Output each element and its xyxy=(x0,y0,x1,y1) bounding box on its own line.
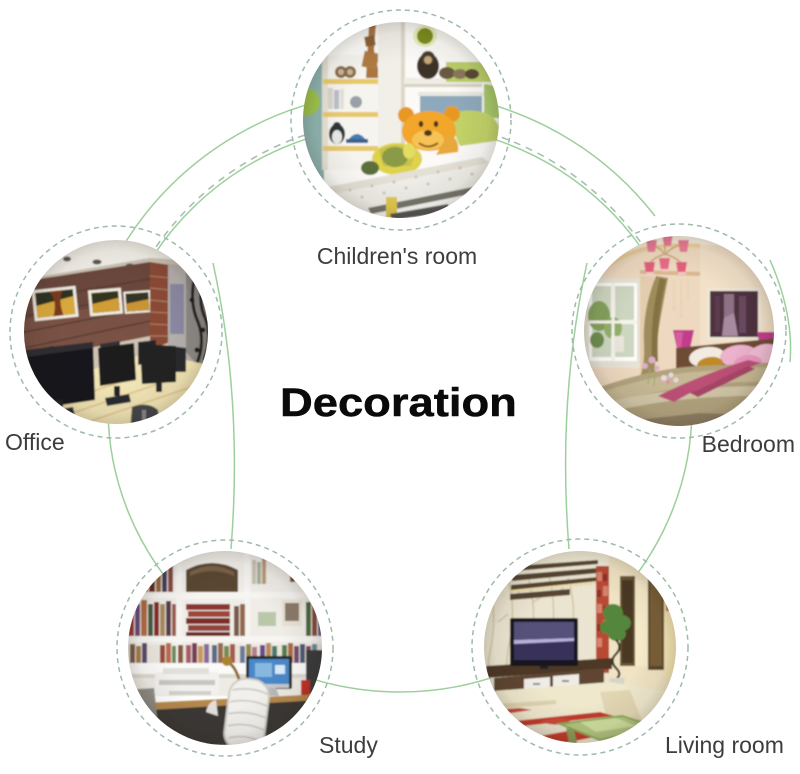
svg-text:Living room: Living room xyxy=(665,732,784,758)
svg-text:Office: Office xyxy=(5,429,65,455)
svg-text:Study: Study xyxy=(319,732,378,758)
svg-text:Decoration: Decoration xyxy=(280,380,517,425)
svg-text:Bedroom: Bedroom xyxy=(702,431,795,457)
svg-text:Children's room: Children's room xyxy=(317,243,477,269)
